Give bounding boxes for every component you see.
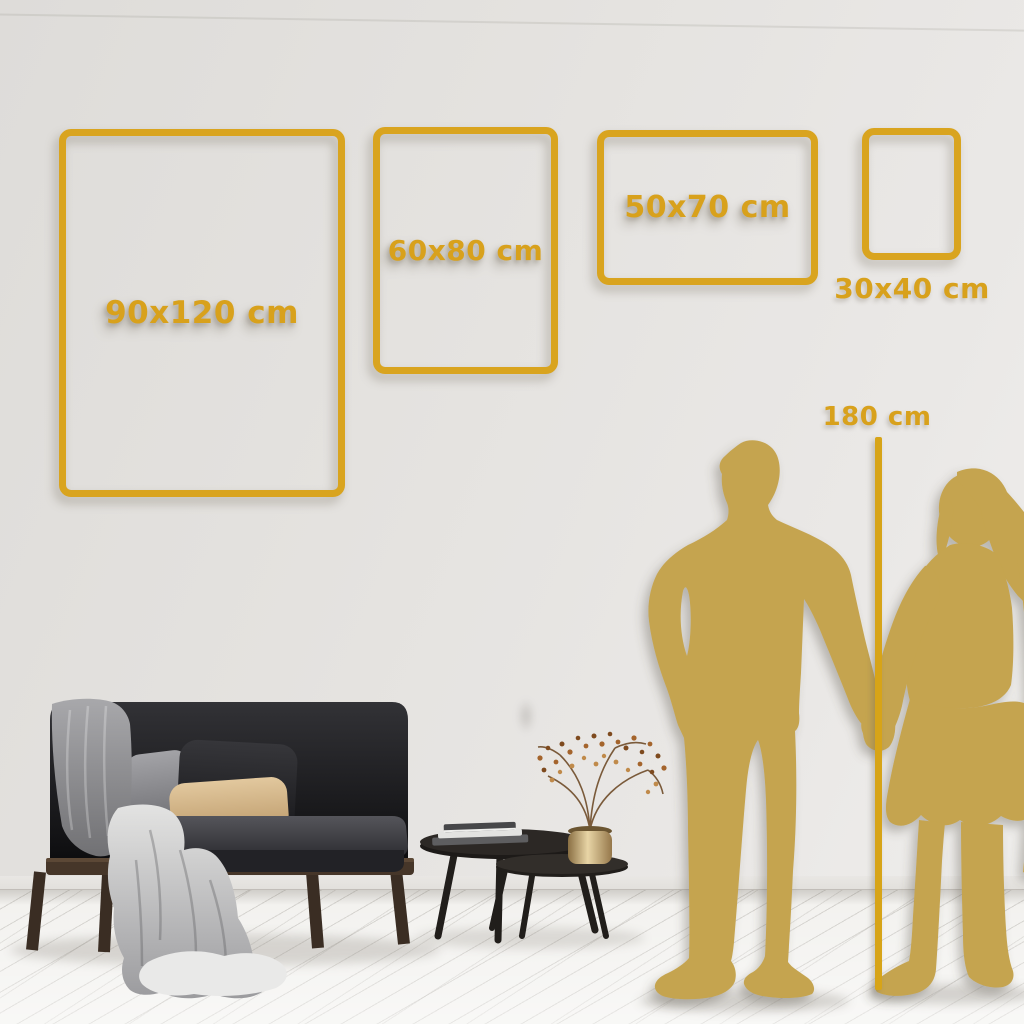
size-frame-30x40 [862, 128, 961, 260]
table-shadow [415, 927, 645, 949]
size-frame-60x80: 60x80 cm [373, 127, 558, 374]
height-reference-line [875, 437, 882, 990]
woman-silhouette [861, 468, 1024, 996]
size-frame-50x70: 50x70 cm [597, 130, 818, 285]
woman-front-leg [875, 820, 945, 996]
size-label-30x40: 30x40 cm [812, 272, 1012, 305]
height-reference-label: 180 cm [818, 402, 936, 432]
berries [537, 732, 666, 795]
size-label-60x80: 60x80 cm [388, 234, 544, 267]
coffee-tables [415, 732, 667, 949]
size-frame-90x120: 90x120 cm [59, 129, 345, 497]
book-stack [432, 821, 529, 845]
woman-back-leg [961, 822, 1014, 988]
couple-silhouette [648, 440, 1024, 999]
branches [538, 743, 663, 830]
size-label-90x120: 90x120 cm [105, 295, 299, 331]
brass-vase [568, 831, 612, 864]
poster-size-guide-mockup: 90x120 cm 60x80 cm 50x70 cm 30x40 cm 180… [0, 0, 1024, 1024]
sheet-on-floor [139, 951, 287, 996]
woman-skirt [886, 699, 1024, 826]
man-silhouette [648, 440, 881, 999]
sofa [10, 699, 440, 998]
size-label-50x70: 50x70 cm [624, 190, 790, 225]
